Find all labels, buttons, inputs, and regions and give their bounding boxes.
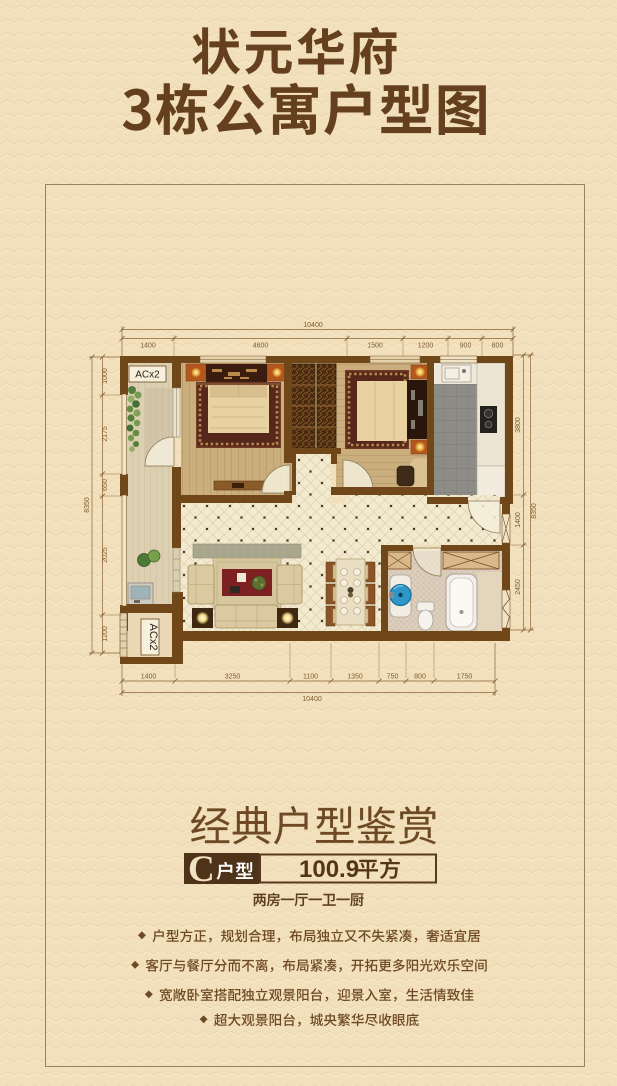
svg-text:100.9: 100.9 [299, 856, 359, 883]
svg-text:C: C [188, 849, 215, 890]
